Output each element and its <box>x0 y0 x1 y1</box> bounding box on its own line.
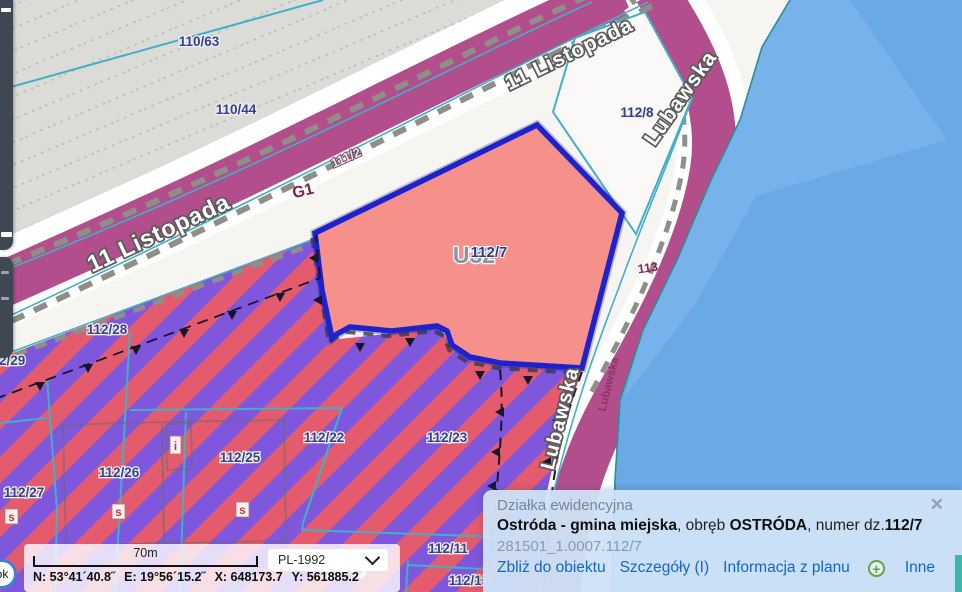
scalebar-tick-left <box>33 556 35 567</box>
parcel-label-112-26: 112/26 <box>99 465 140 480</box>
parcel-label-112-8: 112/8 <box>620 105 654 120</box>
zoom-to-object-link[interactable]: Zbliż do obiektu <box>497 559 606 577</box>
parcel-label-112-23: 112/23 <box>427 430 468 445</box>
parcel-label-110-63: 110/63 <box>179 34 220 49</box>
parcel-number: 112/7 <box>885 517 923 534</box>
plan-info-link[interactable]: Informacja z planu <box>723 559 850 577</box>
separator-obreb: , obręb <box>677 517 730 534</box>
left-toolbar-top[interactable] <box>0 0 13 250</box>
crs-dropdown[interactable]: PL-1992 <box>268 549 388 571</box>
parcel-label-112-27: 112/27 <box>4 485 45 500</box>
parcel-identifier: 281501_1.0007.112/7 <box>497 538 950 555</box>
marker-i-1: i <box>174 441 177 453</box>
parcel-label-112-28: 112/28 <box>87 322 128 337</box>
coord-e: E: 19°56´15.2˝ <box>124 570 205 584</box>
popup-title: Działka ewidencyjna <box>497 497 633 514</box>
parcel-label-110-44: 110/44 <box>216 102 257 117</box>
marker-s-2: s <box>115 507 121 519</box>
statusbar: 70m PL-1992 N: 53°41´40.8˝ E: 19°56´15.2… <box>24 544 400 592</box>
left-toolbar-bottom[interactable] <box>0 257 13 358</box>
corner-strip <box>955 555 962 592</box>
toolbar-icon-2[interactable] <box>1 297 9 300</box>
parcel-description: Ostróda - gmina miejska, obręb OSTRÓDA, … <box>497 517 950 535</box>
parcel-info-popup: Działka ewidencyjna ✕ Ostróda - gmina mi… <box>483 490 962 592</box>
scalebar <box>33 565 258 567</box>
geoportal-map-view: 11 Listopada 11 Listopada Lubawska Lubaw… <box>0 0 962 592</box>
parcel-label-112-7: 112/7 <box>471 244 508 261</box>
marker-s-1: s <box>8 512 14 524</box>
toolbar-icon-1[interactable] <box>1 271 9 274</box>
more-link[interactable]: Inne <box>905 559 935 577</box>
parcel-label-112-11: 112/11 <box>428 541 468 556</box>
coord-n: N: 53°41´40.8˝ <box>33 570 115 584</box>
details-link[interactable]: Szczegóły (I) <box>620 559 710 577</box>
plus-circle-icon[interactable]: + <box>868 560 885 577</box>
parcel-label-112-22: 112/22 <box>304 430 345 445</box>
scalebar-tick-right <box>256 556 258 567</box>
chevron-down-icon <box>365 550 381 566</box>
coordinates-readout: N: 53°41´40.8˝ E: 19°56´15.2˝ X: 648173.… <box>33 570 359 584</box>
popup-actions: Zbliż do obiektu Szczegóły (I) Informacj… <box>497 559 950 577</box>
marker-s-3: s <box>239 505 245 517</box>
parcel-label-112-25: 112/25 <box>220 450 261 465</box>
crs-selected-value: PL-1992 <box>278 553 325 567</box>
close-icon[interactable]: ✕ <box>930 497 944 513</box>
coord-x: X: 648173.7 <box>215 570 283 584</box>
obreb-name: OSTRÓDA <box>730 517 808 534</box>
scalebar-label: 70m <box>33 546 258 560</box>
coord-y: Y: 561885.2 <box>292 570 359 584</box>
municipality-name: Ostróda - gmina miejska <box>497 517 677 534</box>
parcel-label-113: 113 <box>637 260 659 277</box>
toolbar-icon-handle[interactable] <box>1 232 12 237</box>
separator-number: , numer dz. <box>807 517 885 534</box>
toolbar-icon-minimize[interactable] <box>1 8 11 12</box>
